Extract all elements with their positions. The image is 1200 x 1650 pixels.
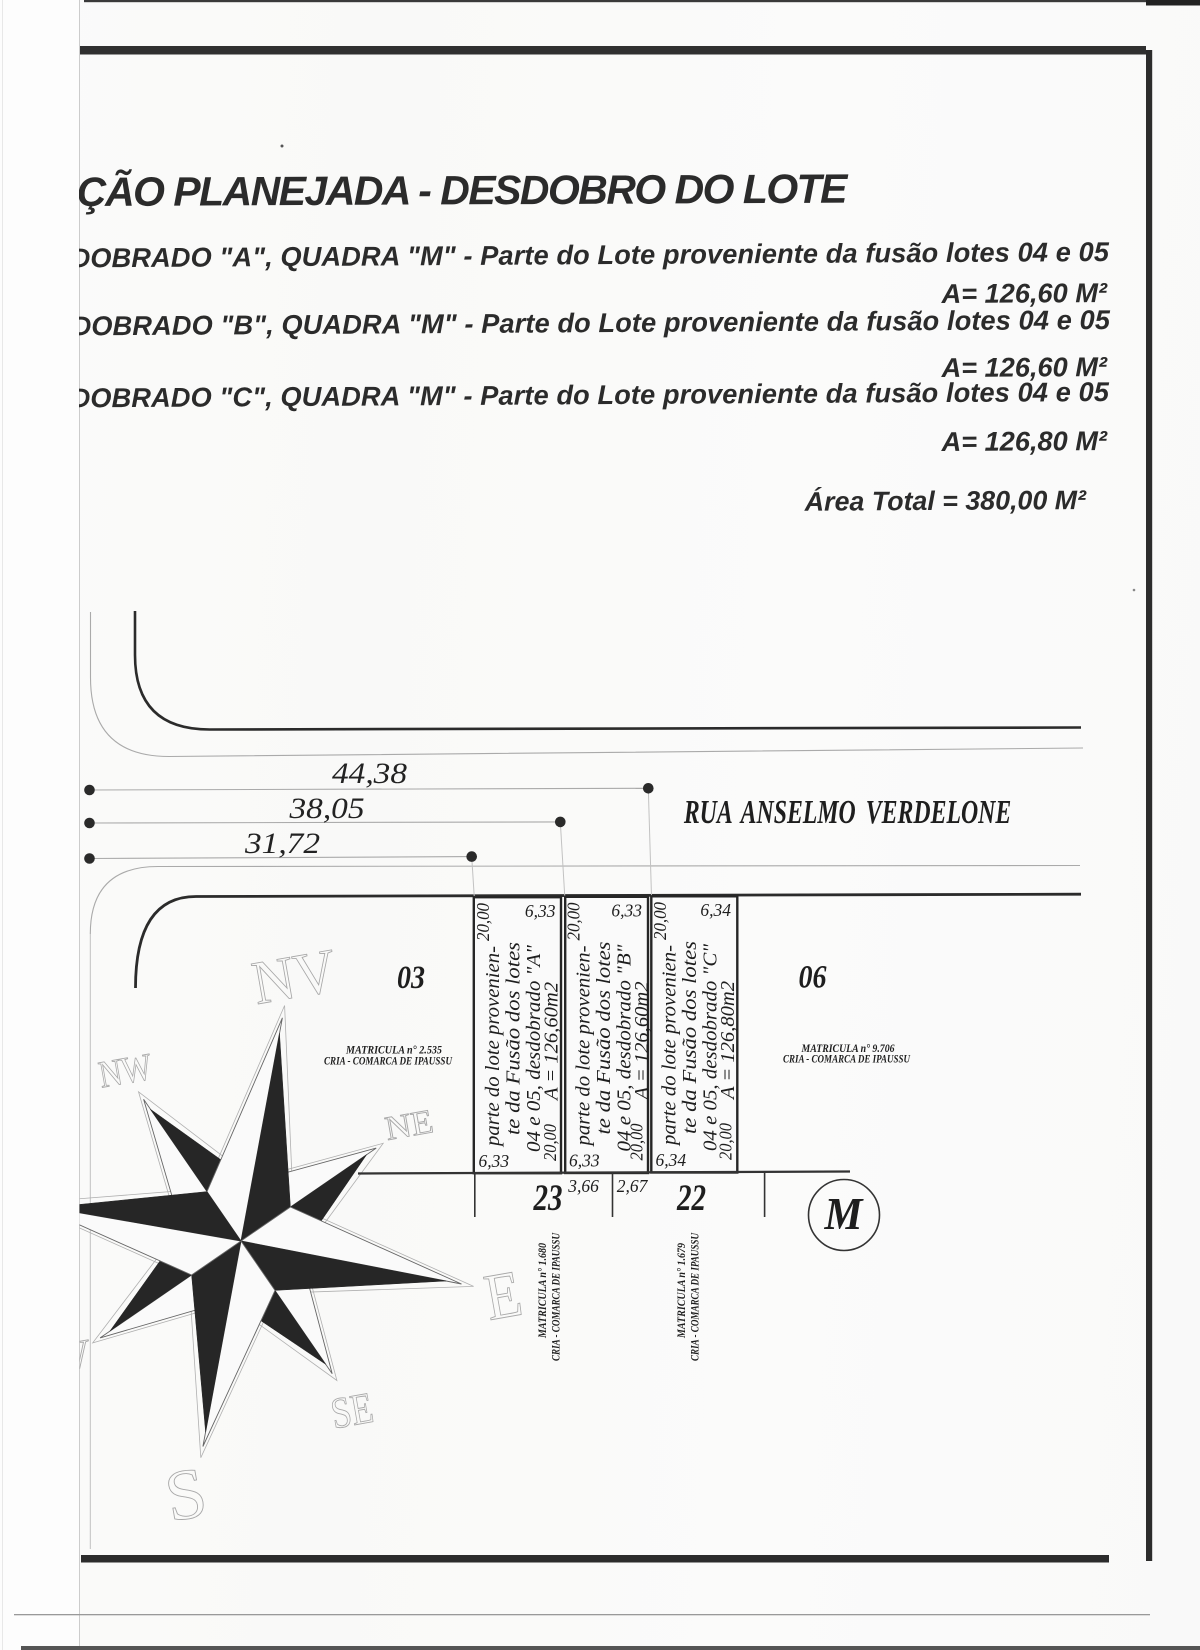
svg-text:6,33: 6,33: [525, 901, 556, 921]
svg-text:parte do lote provenien-: parte do lote provenien-: [659, 945, 681, 1147]
svg-text:SE: SE: [327, 1383, 377, 1439]
svg-text:22: 22: [676, 1178, 706, 1219]
svg-text:S: S: [159, 1451, 212, 1537]
svg-text:2,67: 2,67: [617, 1176, 649, 1196]
svg-text:44,38: 44,38: [332, 757, 407, 790]
svg-text:A = 126,60m2: A = 126,60m2: [631, 982, 653, 1102]
svg-text:MATRICULA n° 1.679: MATRICULA n° 1.679: [676, 1243, 688, 1339]
svg-text:20,00: 20,00: [564, 902, 584, 940]
svg-text:RUA ANSELMO VERDELONE: RUA ANSELMO VERDELONE: [683, 794, 1011, 831]
svg-text:20,00: 20,00: [540, 1124, 560, 1161]
svg-text:20,00: 20,00: [716, 1123, 736, 1160]
svg-text:6,33: 6,33: [611, 901, 642, 921]
svg-text:CRIA - COMARCA DE IPAUSSU: CRIA - COMARCA DE IPAUSSU: [783, 1054, 911, 1066]
svg-text:NE: NE: [382, 1103, 436, 1148]
svg-text:03: 03: [397, 960, 425, 996]
svg-text:6,34: 6,34: [656, 1150, 687, 1170]
svg-text:06: 06: [799, 960, 827, 996]
svg-text:parte do lote provenien-: parte do lote provenien-: [573, 946, 595, 1148]
svg-text:CRIA - COMARCA DE IPAUSSU: CRIA - COMARCA DE IPAUSSU: [551, 1232, 563, 1361]
svg-text:3,66: 3,66: [567, 1176, 599, 1196]
svg-text:20,00: 20,00: [627, 1123, 647, 1160]
svg-text:te da Fusão dos lotes: te da Fusão dos lotes: [503, 942, 525, 1135]
svg-text:6,33: 6,33: [569, 1151, 600, 1171]
svg-text:te da Fusão dos lotes: te da Fusão dos lotes: [679, 941, 701, 1134]
svg-text:NV: NV: [247, 936, 342, 1018]
svg-text:6,33: 6,33: [479, 1151, 510, 1171]
svg-text:20,00: 20,00: [473, 903, 493, 941]
svg-text:parte do lote provenien-: parte do lote provenien-: [482, 946, 504, 1148]
svg-text:MATRICULA n° 1.680: MATRICULA n° 1.680: [537, 1243, 549, 1339]
svg-text:23: 23: [533, 1178, 563, 1219]
svg-text:A = 126,80m2: A = 126,80m2: [717, 981, 739, 1101]
svg-text:A = 126,60m2: A = 126,60m2: [541, 982, 563, 1102]
svg-text:CRIA - COMARCA DE IPAUSSU: CRIA - COMARCA DE IPAUSSU: [324, 1056, 453, 1068]
svg-text:E: E: [479, 1257, 527, 1335]
svg-text:6,34: 6,34: [700, 900, 731, 920]
svg-text:38,05: 38,05: [288, 792, 364, 825]
svg-text:31,72: 31,72: [244, 827, 320, 860]
svg-text:20,00: 20,00: [650, 902, 670, 940]
svg-text:V: V: [59, 1330, 95, 1379]
svg-text:M: M: [824, 1188, 865, 1239]
svg-text:CRIA - COMARCA DE IPAUSSU: CRIA - COMARCA DE IPAUSSU: [690, 1232, 702, 1361]
svg-text:NW: NW: [96, 1046, 156, 1097]
svg-text:te da Fusão dos lotes: te da Fusão dos lotes: [593, 941, 615, 1134]
